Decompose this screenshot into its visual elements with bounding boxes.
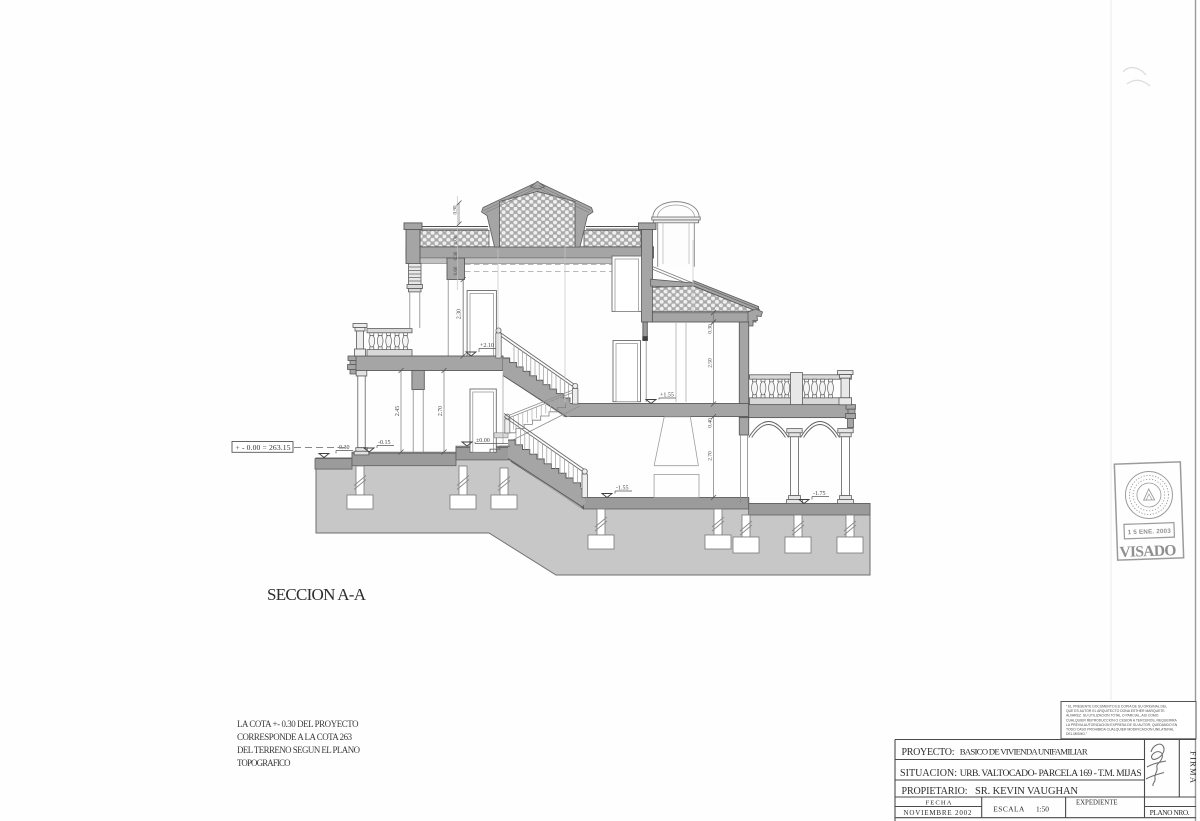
- svg-text:±0.00: ±0.00: [476, 438, 490, 444]
- svg-text:0.40: 0.40: [708, 418, 714, 428]
- svg-text:LA PREVIA AUTORIZACION EXPRESA: LA PREVIA AUTORIZACION EXPRESA DE SU AUT…: [1066, 723, 1178, 727]
- svg-text:2.70: 2.70: [708, 451, 714, 461]
- svg-text:2.30: 2.30: [457, 309, 463, 319]
- svg-text:2.70: 2.70: [438, 406, 444, 416]
- svg-text:0.30: 0.30: [708, 324, 714, 334]
- svg-text:0.60: 0.60: [454, 266, 459, 275]
- svg-text:SECCION A-A: SECCION A-A: [267, 585, 367, 604]
- svg-text:FIRMA: FIRMA: [1189, 751, 1199, 784]
- svg-text:SR. KEVIN VAUGHAN: SR. KEVIN VAUGHAN: [975, 786, 1078, 797]
- svg-text:PROPIETARIO:: PROPIETARIO:: [902, 786, 968, 797]
- svg-text:-0.15: -0.15: [378, 440, 391, 446]
- svg-text:-0.30: -0.30: [337, 445, 350, 451]
- svg-text:PROYECTO:: PROYECTO:: [902, 747, 955, 758]
- svg-text:2.50: 2.50: [708, 358, 714, 368]
- svg-text:0.30: 0.30: [454, 251, 459, 260]
- svg-text:LA COTA +- 0.30 DEL PROYECTO: LA COTA +- 0.30 DEL PROYECTO: [237, 719, 359, 729]
- svg-text:CORRESPONDE A LA COTA 263: CORRESPONDE A LA COTA 263: [237, 732, 353, 742]
- svg-text:QUE ES AUTOR EL ARQUITECTO DON: QUE ES AUTOR EL ARQUITECTO DONA ESTHER M…: [1066, 709, 1165, 713]
- svg-text:EXPEDIENTE: EXPEDIENTE: [1076, 800, 1118, 807]
- svg-text:2.45: 2.45: [395, 406, 401, 416]
- svg-text:SITUACION:: SITUACION:: [900, 768, 957, 779]
- svg-text:" EL PRESENTE DOCUMENTO ES COP: " EL PRESENTE DOCUMENTO ES COPIA DE SU O…: [1066, 705, 1167, 709]
- svg-text:ALVAREZ. SU UTILIZACION TOTAL: ALVAREZ. SU UTILIZACION TOTAL O PARCIAL,…: [1066, 714, 1159, 718]
- svg-text:CUALQUIER REPRODUCCION O CESIO: CUALQUIER REPRODUCCION O CESION A TERCER…: [1066, 718, 1177, 722]
- svg-text:DEL MISMO.": DEL MISMO.": [1066, 732, 1088, 736]
- svg-text:1:50: 1:50: [1036, 805, 1049, 814]
- svg-text:PLANO NRO.: PLANO NRO.: [1150, 808, 1190, 817]
- svg-text:-1.55: -1.55: [616, 486, 629, 492]
- svg-text:ESCALA: ESCALA: [993, 805, 1025, 814]
- svg-text:-1.75: -1.75: [813, 491, 826, 497]
- svg-text:VISADO: VISADO: [1119, 542, 1177, 561]
- svg-text:BASICO DE VIVIENDA UNIFAMILIA: BASICO DE VIVIENDA UNIFAMILIAR: [960, 747, 1088, 757]
- svg-text:1.00: 1.00: [454, 235, 459, 244]
- svg-text:+1.55: +1.55: [660, 393, 674, 399]
- svg-text:DEL TERRENO SEGUN EL PLANO: DEL TERRENO SEGUN EL PLANO: [237, 745, 361, 755]
- svg-text:0.90: 0.90: [453, 205, 459, 214]
- svg-text:+2.10: +2.10: [480, 343, 494, 349]
- svg-text:FECHA: FECHA: [926, 800, 952, 807]
- svg-text:TODO CASO PROHIBIDA CUALQUIER: TODO CASO PROHIBIDA CUALQUIER MODIFICACI…: [1066, 728, 1174, 732]
- svg-text:URB. VALTOCADO- PARCELA 169 -: URB. VALTOCADO- PARCELA 169 - T.M. MIJAS: [960, 768, 1142, 779]
- svg-text:+ - 0.00 = 263.15: + - 0.00 = 263.15: [236, 443, 291, 452]
- svg-text:NOVIEMBRE 2002: NOVIEMBRE 2002: [904, 809, 973, 817]
- svg-text:TOPOGRAFICO: TOPOGRAFICO: [237, 758, 291, 768]
